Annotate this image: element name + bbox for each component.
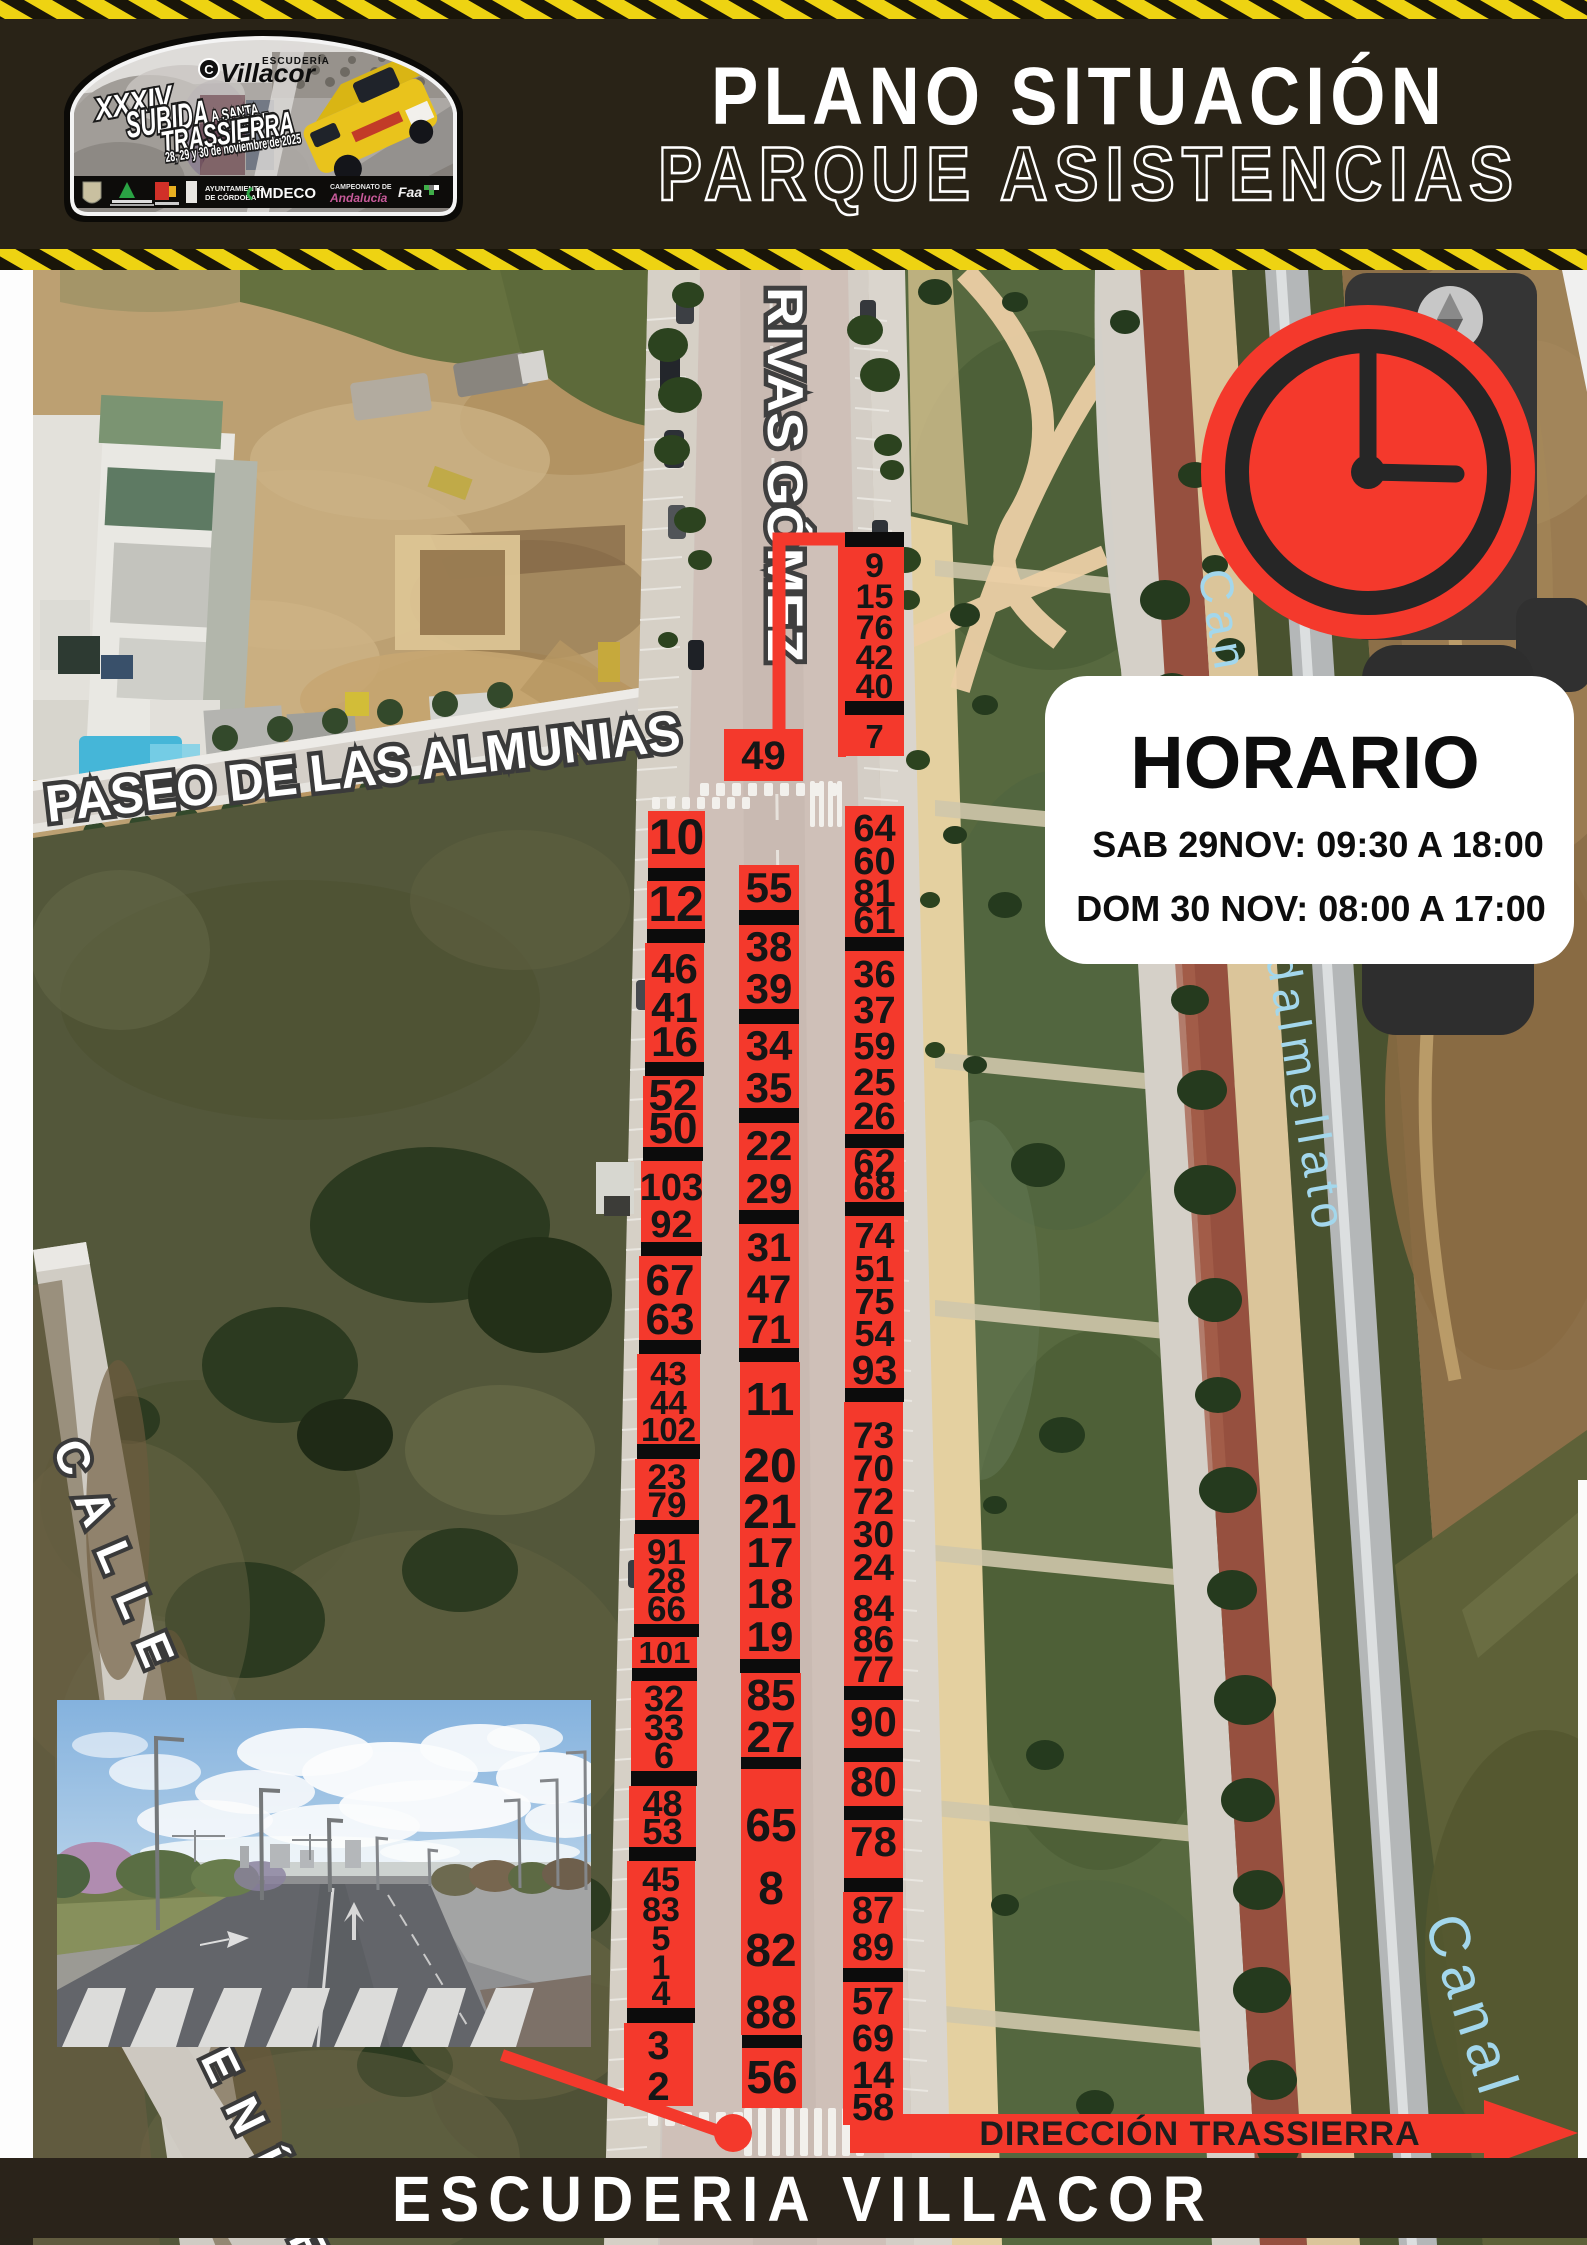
svg-text:66: 66 bbox=[647, 1590, 686, 1629]
svg-text:7: 7 bbox=[865, 718, 883, 755]
svg-text:PLANO SITUACIÓN: PLANO SITUACIÓN bbox=[711, 51, 1447, 142]
svg-text:87: 87 bbox=[852, 1890, 894, 1932]
svg-text:29: 29 bbox=[746, 1165, 793, 1212]
svg-text:Villacor: Villacor bbox=[220, 58, 317, 88]
svg-text:10: 10 bbox=[649, 809, 705, 865]
svg-text:DOM 30 NOV: 08:00 A 17:00: DOM 30 NOV: 08:00 A 17:00 bbox=[1076, 888, 1546, 929]
svg-text:80: 80 bbox=[850, 1758, 897, 1805]
svg-text:DIRECCIÓN TRASSIERRA: DIRECCIÓN TRASSIERRA bbox=[979, 2115, 1420, 2153]
svg-text:12: 12 bbox=[648, 876, 704, 932]
svg-text:11: 11 bbox=[746, 1373, 795, 1425]
svg-text:77: 77 bbox=[853, 1649, 894, 1690]
svg-text:26: 26 bbox=[853, 1096, 895, 1138]
svg-text:27: 27 bbox=[747, 1713, 796, 1762]
svg-text:4: 4 bbox=[652, 1975, 671, 2013]
svg-text:35: 35 bbox=[746, 1064, 793, 1111]
svg-text:SAB 29NOV: 09:30 A 18:00: SAB 29NOV: 09:30 A 18:00 bbox=[1092, 824, 1544, 865]
svg-text:31: 31 bbox=[747, 1226, 792, 1270]
svg-text:56: 56 bbox=[746, 2051, 797, 2103]
svg-text:Faa: Faa bbox=[398, 184, 422, 200]
svg-text:55: 55 bbox=[746, 864, 793, 911]
svg-text:CAMPEONATO DE: CAMPEONATO DE bbox=[330, 184, 392, 191]
svg-text:102: 102 bbox=[641, 1411, 696, 1448]
svg-text:93: 93 bbox=[852, 1347, 898, 1393]
svg-text:22: 22 bbox=[746, 1122, 793, 1169]
svg-text:82: 82 bbox=[745, 1924, 796, 1976]
svg-text:18: 18 bbox=[747, 1570, 794, 1617]
svg-text:PARQUE ASISTENCIAS: PARQUE ASISTENCIAS bbox=[658, 132, 1520, 217]
svg-text:50: 50 bbox=[649, 1104, 698, 1153]
svg-text:63: 63 bbox=[646, 1295, 695, 1344]
svg-text:2: 2 bbox=[647, 2065, 669, 2109]
svg-text:6: 6 bbox=[654, 1735, 674, 1776]
svg-text:24: 24 bbox=[853, 1547, 895, 1588]
svg-text:58: 58 bbox=[852, 2087, 894, 2129]
svg-text:68: 68 bbox=[853, 1166, 895, 1208]
svg-text:103: 103 bbox=[640, 1167, 703, 1209]
svg-text:90: 90 bbox=[850, 1698, 897, 1745]
svg-text:88: 88 bbox=[745, 1986, 796, 2038]
svg-text:34: 34 bbox=[746, 1022, 793, 1069]
svg-text:8: 8 bbox=[758, 1862, 784, 1914]
svg-text:16: 16 bbox=[651, 1018, 698, 1065]
svg-text:C: C bbox=[204, 62, 214, 77]
svg-text:Andalucía: Andalucía bbox=[329, 191, 388, 205]
svg-text:3: 3 bbox=[647, 2024, 669, 2068]
svg-text:89: 89 bbox=[852, 1927, 894, 1969]
svg-text:49: 49 bbox=[741, 734, 786, 778]
svg-text:HORARIO: HORARIO bbox=[1130, 721, 1479, 804]
svg-text:71: 71 bbox=[747, 1308, 792, 1352]
svg-text:40: 40 bbox=[856, 668, 894, 706]
svg-text:78: 78 bbox=[850, 1818, 897, 1865]
svg-text:61: 61 bbox=[853, 900, 895, 942]
svg-text:79: 79 bbox=[648, 1486, 687, 1525]
svg-text:47: 47 bbox=[747, 1268, 792, 1312]
svg-text:ESCUDERIA VILLACOR: ESCUDERIA VILLACOR bbox=[392, 2163, 1214, 2235]
svg-text:19: 19 bbox=[747, 1613, 794, 1660]
svg-text:92: 92 bbox=[650, 1204, 692, 1246]
svg-text:53: 53 bbox=[642, 1811, 682, 1852]
svg-text:101: 101 bbox=[639, 1635, 691, 1670]
svg-text:38: 38 bbox=[746, 923, 793, 970]
svg-text:57: 57 bbox=[852, 1981, 894, 2023]
svg-text:39: 39 bbox=[746, 965, 793, 1012]
svg-text:17: 17 bbox=[747, 1529, 794, 1576]
svg-text:69: 69 bbox=[852, 2018, 894, 2060]
svg-text:IMDECO: IMDECO bbox=[256, 185, 316, 202]
svg-text:65: 65 bbox=[745, 1799, 796, 1851]
